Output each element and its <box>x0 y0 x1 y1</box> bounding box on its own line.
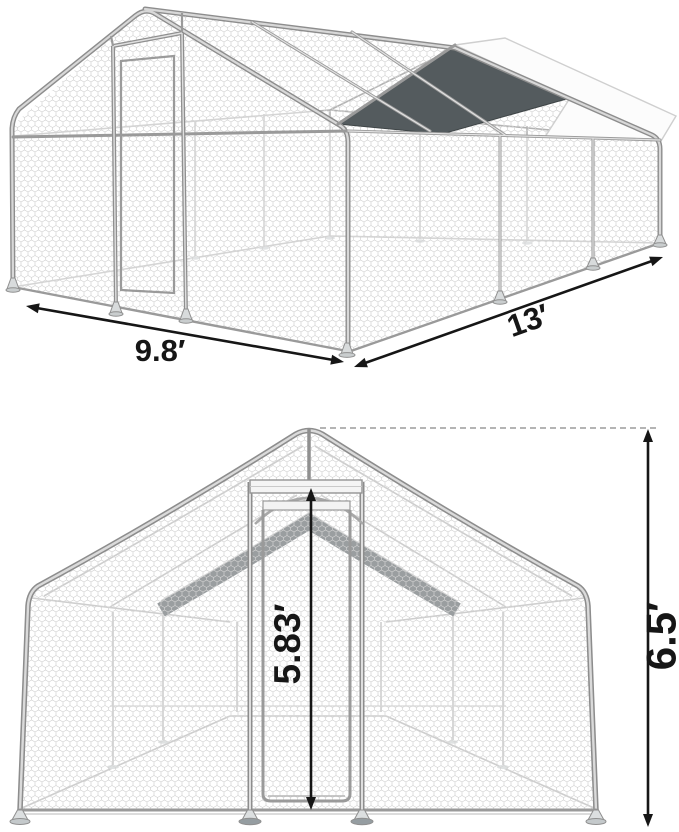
side-wall-mesh <box>348 131 660 352</box>
door-height-dimension-label: 5.83′ <box>267 603 308 684</box>
width-dimension-label: 9.8′ <box>135 333 186 368</box>
arrowhead <box>643 814 653 827</box>
figure-front-view: 5.83′ 6.5′ <box>0 400 679 832</box>
product-dimension-diagram: 9.8′ 13′ <box>0 0 679 832</box>
arrowhead <box>354 358 368 367</box>
arrowhead <box>649 257 663 267</box>
ground-feet <box>10 810 606 825</box>
arrowhead <box>26 303 40 313</box>
length-dimension-label: 13′ <box>503 297 554 344</box>
door-leaf-top-bar <box>263 501 350 510</box>
figure-perspective-view: 9.8′ 13′ <box>0 0 679 400</box>
total-height-dimension-label: 6.5′ <box>638 602 679 670</box>
arrowhead <box>643 429 653 442</box>
mesh-surfaces <box>12 8 660 352</box>
